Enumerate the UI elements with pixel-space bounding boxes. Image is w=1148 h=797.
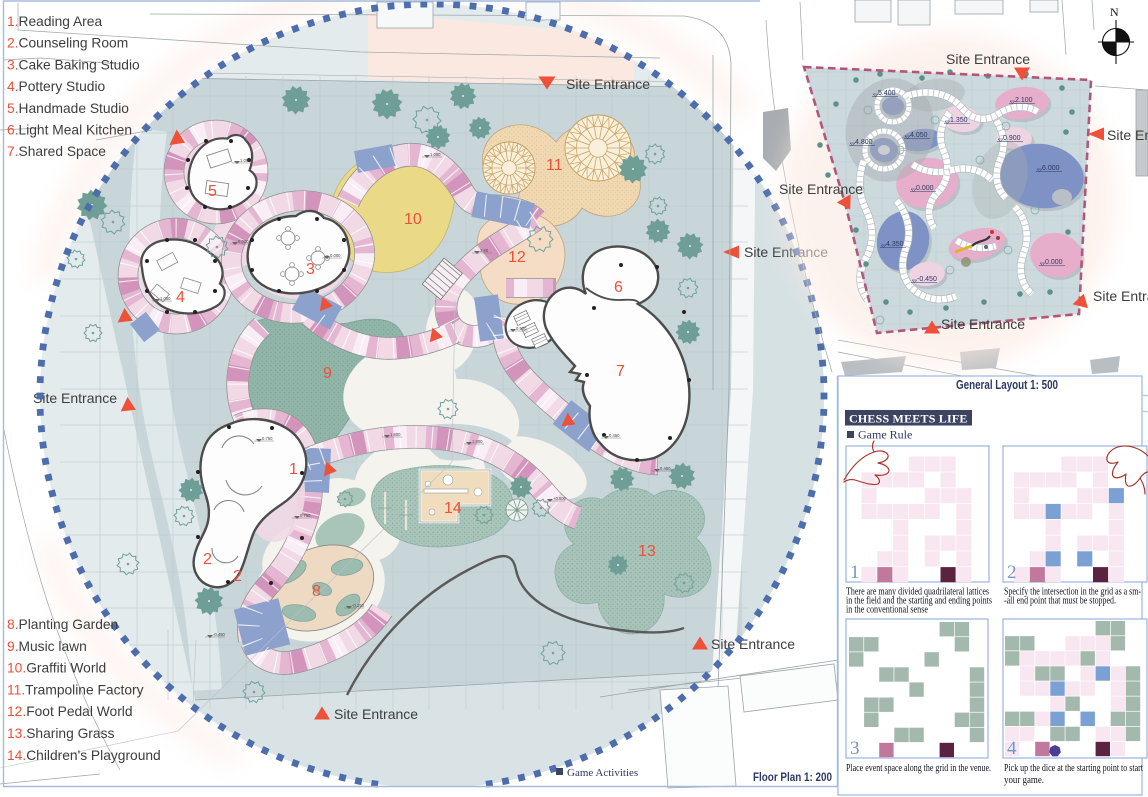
svg-text:4: 4 bbox=[1007, 738, 1017, 759]
svg-text:Site Entrance: Site Entrance bbox=[941, 316, 1025, 332]
svg-text:Site Entrance: Site Entrance bbox=[1107, 127, 1148, 143]
svg-text:-0.450: -0.450 bbox=[917, 276, 937, 283]
svg-text:0.750: 0.750 bbox=[262, 436, 273, 441]
svg-text:1.800: 1.800 bbox=[472, 439, 483, 444]
svg-text:6.000: 6.000 bbox=[1042, 165, 1060, 172]
svg-text:4.050: 4.050 bbox=[910, 132, 928, 139]
svg-text:14: 14 bbox=[444, 500, 462, 517]
svg-text:Site Entrance: Site Entrance bbox=[334, 706, 418, 722]
svg-text:5.Handmade Studio: 5.Handmade Studio bbox=[7, 101, 129, 116]
svg-text:Site Entrance: Site Entrance bbox=[566, 76, 650, 92]
svg-text:General Layout 1: 500: General Layout 1: 500 bbox=[956, 378, 1058, 392]
svg-text:8.Planting Garden: 8.Planting Garden bbox=[7, 617, 118, 632]
svg-text:4: 4 bbox=[176, 289, 185, 306]
svg-text:0.450: 0.450 bbox=[660, 466, 671, 471]
svg-text:8: 8 bbox=[312, 583, 321, 600]
svg-text:7: 7 bbox=[616, 363, 625, 380]
svg-text:Site Entrance: Site Entrance bbox=[946, 51, 1030, 67]
svg-text:12: 12 bbox=[508, 249, 526, 266]
svg-text:Pick up the dice at the starti: Pick up the dice at the starting point t… bbox=[1004, 763, 1143, 774]
svg-text:0.900: 0.900 bbox=[516, 326, 527, 331]
svg-text:-0.450: -0.450 bbox=[213, 632, 226, 637]
svg-text:+0.500: +0.500 bbox=[553, 496, 567, 501]
svg-text:Place event space along the gr: Place event space along the grid in the … bbox=[846, 763, 991, 774]
svg-text:4.350: 4.350 bbox=[886, 241, 904, 248]
svg-text:3: 3 bbox=[850, 738, 860, 759]
svg-text:3: 3 bbox=[306, 261, 315, 278]
svg-text:0.000: 0.000 bbox=[916, 185, 934, 192]
svg-text:13: 13 bbox=[638, 543, 656, 560]
svg-text:-all end point that must be st: -all end point that must be stopped. bbox=[1004, 596, 1116, 607]
svg-text:Site Entrance: Site Entrance bbox=[1093, 288, 1148, 304]
svg-text:10.Graffiti World: 10.Graffiti World bbox=[7, 661, 106, 676]
svg-text:14.Children's Playground: 14.Children's Playground bbox=[7, 748, 161, 763]
svg-text:Floor Plan 1: 200: Floor Plan 1: 200 bbox=[753, 772, 832, 784]
svg-text:0.450: 0.450 bbox=[609, 433, 620, 438]
svg-text:1.000: 1.000 bbox=[240, 158, 251, 163]
svg-text:6.Light Meal Kitchen: 6.Light Meal Kitchen bbox=[7, 123, 132, 138]
svg-text:your game.: your game. bbox=[1004, 775, 1044, 786]
svg-text:Site Entrance: Site Entrance bbox=[33, 390, 117, 406]
svg-text:1.000: 1.000 bbox=[430, 152, 441, 157]
svg-text:CHESS MEETS LIFE: CHESS MEETS LIFE bbox=[849, 412, 968, 426]
svg-text:5.400: 5.400 bbox=[878, 90, 896, 97]
svg-text:6: 6 bbox=[614, 279, 623, 296]
svg-text:2.100: 2.100 bbox=[1015, 97, 1033, 104]
svg-text:Game Activities: Game Activities bbox=[567, 767, 638, 779]
svg-text:4.800: 4.800 bbox=[855, 139, 873, 146]
svg-text:0.750: 0.750 bbox=[300, 513, 311, 518]
svg-text:13.Sharing Grass: 13.Sharing Grass bbox=[7, 726, 114, 741]
svg-text:0.000: 0.000 bbox=[238, 239, 249, 244]
svg-text:1: 1 bbox=[289, 461, 298, 478]
svg-text:0.000: 0.000 bbox=[1045, 259, 1063, 266]
svg-text:3.60: 3.60 bbox=[480, 248, 489, 253]
svg-text:1.800: 1.800 bbox=[390, 432, 401, 437]
svg-text:0.900: 0.900 bbox=[1003, 135, 1021, 142]
svg-text:2: 2 bbox=[203, 551, 212, 568]
svg-text:1.350: 1.350 bbox=[950, 117, 968, 124]
svg-text:Site Entrance: Site Entrance bbox=[711, 636, 795, 652]
svg-text:3.Cake Baking Studio: 3.Cake Baking Studio bbox=[7, 57, 140, 72]
svg-text:5: 5 bbox=[208, 183, 217, 200]
svg-text:12.Foot Pedal World: 12.Foot Pedal World bbox=[7, 704, 133, 719]
svg-text:9.Music lawn: 9.Music lawn bbox=[7, 639, 87, 654]
svg-text:0.000: 0.000 bbox=[330, 253, 341, 258]
svg-text:Game Rule: Game Rule bbox=[858, 428, 912, 442]
svg-text:10: 10 bbox=[404, 211, 422, 228]
svg-text:-0.150: -0.150 bbox=[352, 603, 365, 608]
svg-text:7.Shared Space: 7.Shared Space bbox=[7, 144, 106, 159]
svg-text:9: 9 bbox=[323, 365, 332, 382]
svg-text:N: N bbox=[1110, 5, 1119, 19]
svg-text:11: 11 bbox=[546, 157, 563, 174]
svg-text:1: 1 bbox=[850, 562, 860, 583]
svg-text:2: 2 bbox=[1007, 562, 1017, 583]
svg-text:4.Pottery Studio: 4.Pottery Studio bbox=[7, 79, 106, 94]
svg-text:2: 2 bbox=[233, 568, 242, 585]
svg-text:1.050: 1.050 bbox=[160, 296, 171, 301]
svg-text:11.Trampoline Factory: 11.Trampoline Factory bbox=[7, 682, 144, 697]
svg-text:1.Reading Area: 1.Reading Area bbox=[7, 14, 102, 29]
svg-text:2.Counseling Room: 2.Counseling Room bbox=[7, 36, 128, 51]
svg-text:in the conventional sense: in the conventional sense bbox=[846, 605, 928, 616]
